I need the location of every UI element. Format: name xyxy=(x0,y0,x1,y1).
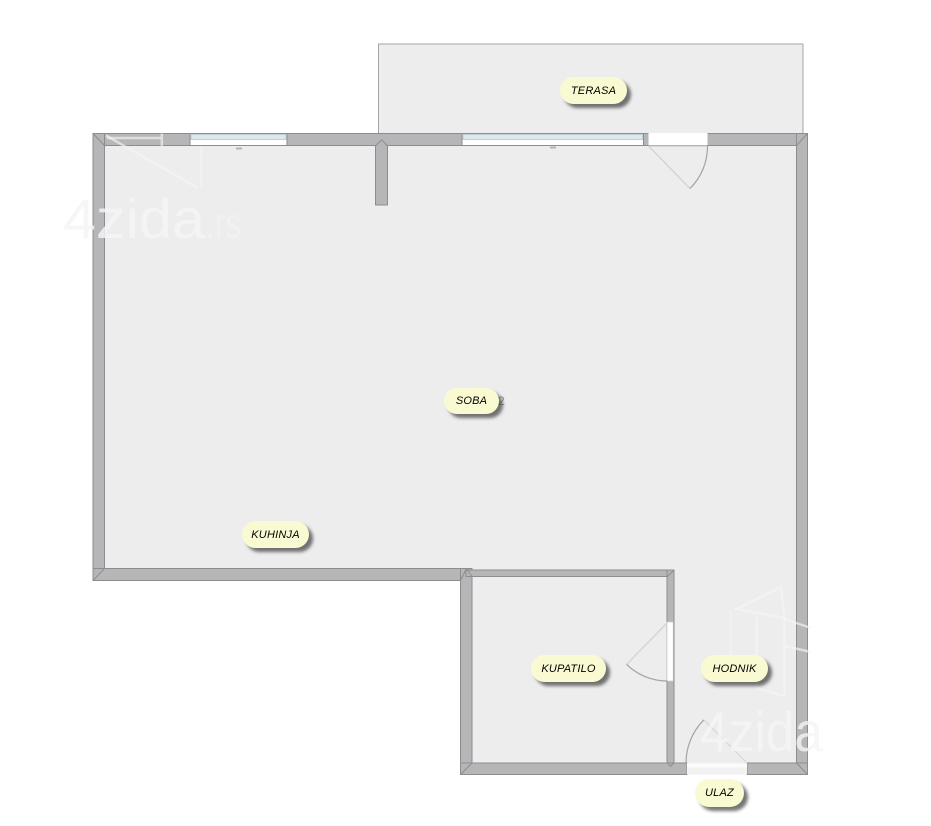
svg-text:.rs: .rs xyxy=(206,199,241,248)
svg-text:4zida: 4zida xyxy=(700,700,824,763)
svg-text:2: 2 xyxy=(498,394,505,408)
svg-text:4zida: 4zida xyxy=(63,187,206,250)
